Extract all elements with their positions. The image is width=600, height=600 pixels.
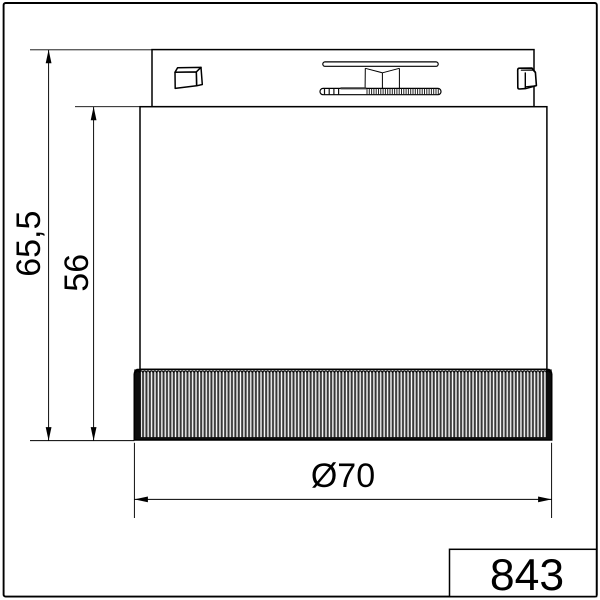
svg-text:Ø70: Ø70 — [311, 457, 375, 495]
svg-text:56: 56 — [58, 254, 96, 292]
svg-text:65,5: 65,5 — [10, 211, 48, 277]
svg-text:843: 843 — [490, 551, 564, 600]
